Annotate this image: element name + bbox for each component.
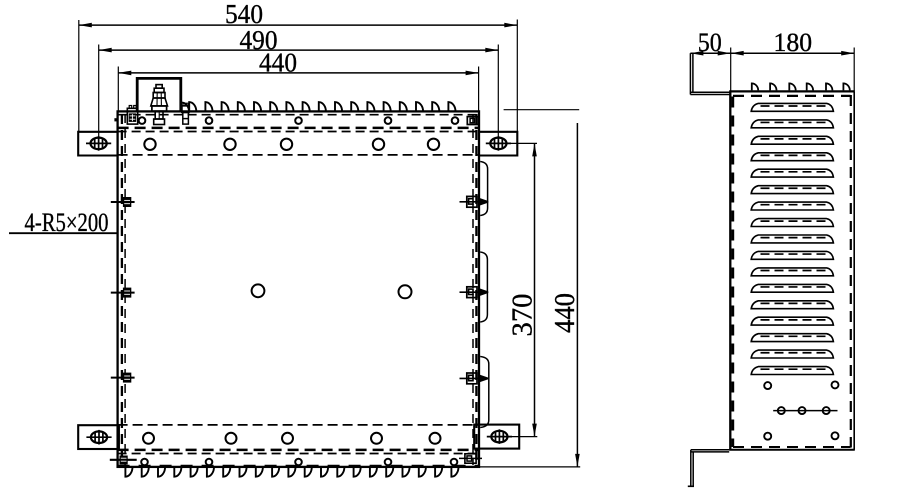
svg-text:370: 370 xyxy=(508,294,539,337)
svg-text:440: 440 xyxy=(550,293,581,333)
svg-text:440: 440 xyxy=(259,47,297,77)
svg-text:50: 50 xyxy=(698,28,722,57)
svg-text:180: 180 xyxy=(774,28,813,57)
